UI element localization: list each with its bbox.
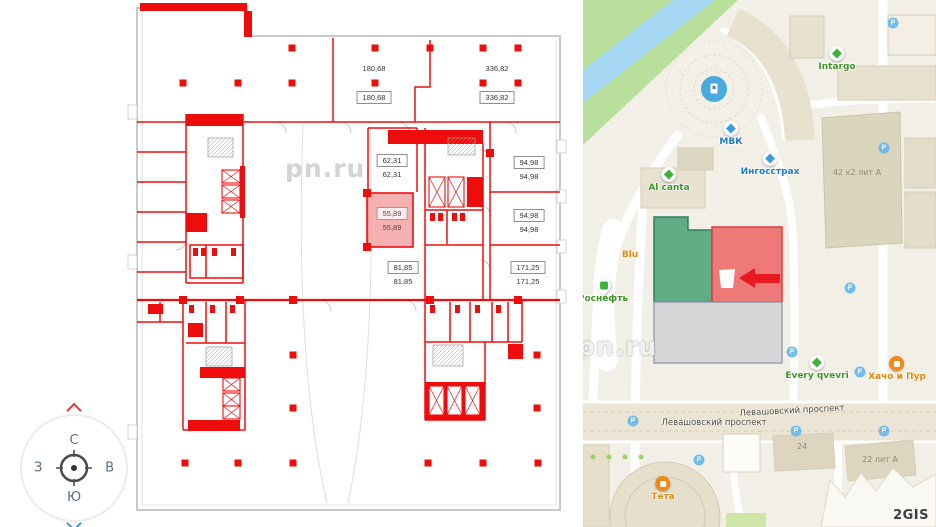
map-panel[interactable]: Intargo МВК Ингосстрах Al canta Blu Росн… (583, 0, 936, 527)
unit-area: 180,68 (363, 64, 386, 73)
parking-icon: P (879, 143, 890, 154)
highlight-section-red (712, 227, 782, 302)
unit-area-tag[interactable]: 62,31 (377, 154, 408, 167)
parking-icon: P (694, 455, 705, 466)
compass-east-label: В (105, 461, 114, 476)
unit-area-tag[interactable]: 180,68 (357, 91, 392, 104)
poi-label: МВК (719, 137, 742, 147)
shop-marker-icon (655, 476, 670, 491)
compass-west-label: З (34, 461, 42, 476)
parking-icon: P (879, 426, 890, 437)
parking-icon: P (855, 367, 866, 378)
poi-label: Blu (622, 250, 638, 260)
unit-area-tag[interactable]: 336,82 (480, 91, 515, 104)
unit-label-336-82: 336,82 336,82 (480, 64, 515, 104)
building-label-42k2: 42 к2 лит А (833, 168, 881, 177)
parking-icon: P (628, 416, 639, 427)
floor-plan-panel[interactable]: 180,68 180,68 336,82 336,82 62,31 62,31 … (0, 0, 583, 527)
unit-label-94-98-b: 94,98 94,98 (514, 209, 545, 234)
selected-unit-on-map (719, 269, 735, 288)
building-label-22litA: 22 лит А (862, 455, 898, 464)
building-label-24: 24 (797, 442, 807, 451)
unit-area-tag[interactable]: 81,85 (388, 261, 419, 274)
poi-mvk[interactable]: МВК (719, 121, 742, 147)
green-diamond-marker-icon (662, 167, 677, 182)
restaurant-marker-icon (889, 356, 904, 371)
compass-dial-icon (52, 446, 96, 490)
watermark: pn.ru (583, 332, 657, 361)
blue-diamond-marker-icon (724, 121, 739, 136)
unit-label-81-85: 81,85 81,85 (388, 261, 419, 286)
poi-al-canta[interactable]: Al canta (648, 167, 689, 193)
poi-ingosstrakh[interactable]: Ингосстрах (741, 151, 800, 177)
unit-area-tag[interactable]: 94,98 (514, 156, 545, 169)
map-canvas[interactable] (583, 0, 936, 527)
green-diamond-marker-icon (829, 46, 844, 61)
unit-area-tag[interactable]: 55,89 (377, 207, 408, 220)
unit-area: 94,98 (520, 172, 539, 181)
unit-area: 336,82 (486, 64, 509, 73)
unit-area-tag[interactable]: 94,98 (514, 209, 545, 222)
unit-area-tag[interactable]: 171,25 (511, 261, 546, 274)
highlight-section-green (654, 217, 712, 302)
fountain-icon (701, 76, 727, 102)
poi-label: Al canta (648, 183, 689, 193)
unit-label-171-25: 171,25 171,25 (511, 261, 546, 286)
compass-circle: С Ю З В (20, 414, 128, 522)
poi-label: Intargo (818, 62, 855, 72)
2gis-logo[interactable]: 2GIS (893, 508, 929, 523)
unit-area: 171,25 (517, 277, 540, 286)
unit-label-62-31: 62,31 62,31 (377, 154, 408, 179)
highlight-section-gray (654, 302, 782, 363)
poi-label: Роснефть (583, 294, 628, 304)
building-highlight[interactable] (654, 217, 782, 363)
poi-blu[interactable]: Blu (622, 250, 638, 260)
poi-khacho-i-pur[interactable]: Хачо и Пур (868, 356, 926, 382)
blue-diamond-marker-icon (763, 151, 778, 166)
poi-rosneft[interactable]: Роснефть (583, 278, 628, 304)
shop-marker-icon (810, 355, 825, 370)
parking-icon: P (791, 426, 802, 437)
street-label-levashovsky-1: Левашовский проспект (661, 418, 766, 428)
unit-label-55-89-selected: 55,89 55,89 (377, 207, 408, 232)
poi-label: Ингосстрах (741, 167, 800, 177)
listing-view: 180,68 180,68 336,82 336,82 62,31 62,31 … (0, 0, 936, 527)
unit-area: 62,31 (383, 170, 402, 179)
unit-label-180-68: 180,68 180,68 (357, 64, 392, 104)
unit-area: 81,85 (394, 277, 413, 286)
compass: С Ю З В (18, 405, 130, 527)
poi-label: Every qvevri (785, 371, 848, 381)
watermark: pn.ru (285, 154, 365, 183)
unit-area: 55,89 (383, 223, 402, 232)
compass-south-label: Ю (67, 490, 81, 505)
unit-area: 94,98 (520, 225, 539, 234)
parking-icon: P (888, 18, 899, 29)
poi-label: Хачо и Пур (868, 372, 926, 382)
poi-intargo[interactable]: Intargo (818, 46, 855, 72)
fuel-station-marker-icon (592, 275, 613, 296)
poi-every-qvevri[interactable]: Every qvevri (785, 355, 848, 381)
poi-teta[interactable]: Тета (651, 476, 675, 502)
parking-icon: P (845, 283, 856, 294)
unit-label-94-98-a: 94,98 94,98 (514, 156, 545, 181)
poi-label: Тета (651, 492, 675, 502)
